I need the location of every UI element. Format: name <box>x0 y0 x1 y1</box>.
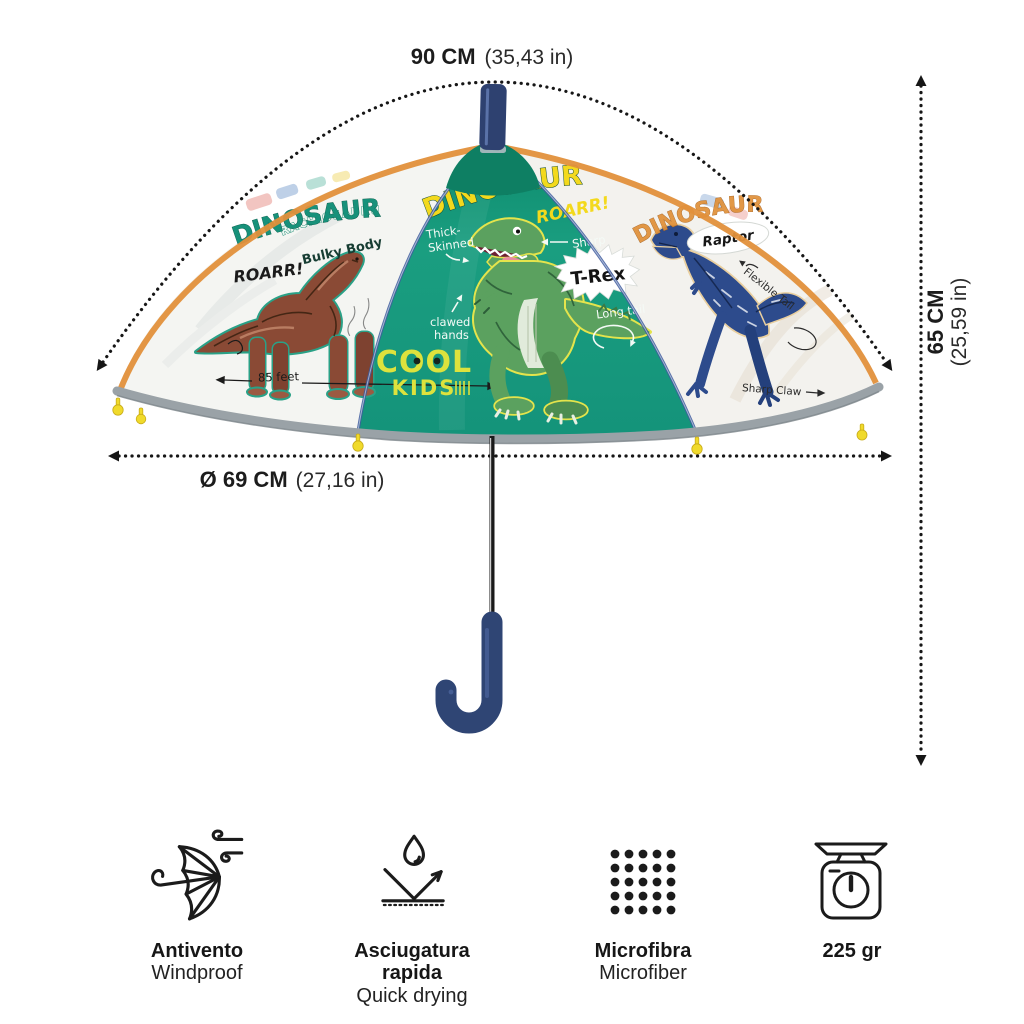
windproof-umbrella-icon <box>104 826 290 932</box>
feature-microfiber-label-en: Microfiber <box>550 962 736 984</box>
product-infographic: BRACHIOSAURUS DINOSAUR Bulky Body ROARR!… <box>0 0 1024 1024</box>
umbrella-ferrule <box>479 84 507 151</box>
umbrella-handle <box>446 622 492 723</box>
feature-windproof: Antivento Windproof <box>104 826 290 985</box>
feature-quick-drying: Asciugatura rapida Quick drying <box>318 826 506 1007</box>
microfiber-dots-icon <box>550 826 736 932</box>
features-row: Antivento Windproof Asciugatura rapida Q… <box>0 826 1024 1016</box>
height-measurement-label: 65 CM <box>923 290 948 355</box>
svg-text:clawed: clawed <box>430 315 470 329</box>
left-panel-length-text: 85 feet <box>258 369 300 384</box>
svg-text:hands: hands <box>434 328 469 342</box>
feature-weight: 225 gr <box>756 826 948 962</box>
umbrella-diagram: BRACHIOSAURUS DINOSAUR Bulky Body ROARR!… <box>0 0 1024 810</box>
feature-windproof-label-en: Windproof <box>104 962 290 984</box>
feature-microfiber: Microfibra Microfiber <box>550 826 736 985</box>
feature-microfiber-label-it: Microfibra <box>550 940 736 962</box>
quick-dry-icon <box>318 826 506 932</box>
weight-scale-icon <box>756 826 948 932</box>
feature-quick-drying-label-en: Quick drying <box>318 985 506 1007</box>
svg-text:KIDS: KIDS <box>392 376 457 400</box>
svg-text:COOL: COOL <box>376 345 472 380</box>
umbrella-shaft <box>490 436 495 624</box>
width-measurement-label: 90 CM(35,43 in) <box>411 44 574 69</box>
height-measurement-inches: (25,59 in) <box>948 278 971 367</box>
diameter-measurement-label: Ø 69 CM(27,16 in) <box>200 467 385 492</box>
feature-quick-drying-label-it: Asciugatura rapida <box>346 940 478 985</box>
feature-windproof-label-it: Antivento <box>104 940 290 962</box>
feature-weight-label: 225 gr <box>756 940 948 962</box>
